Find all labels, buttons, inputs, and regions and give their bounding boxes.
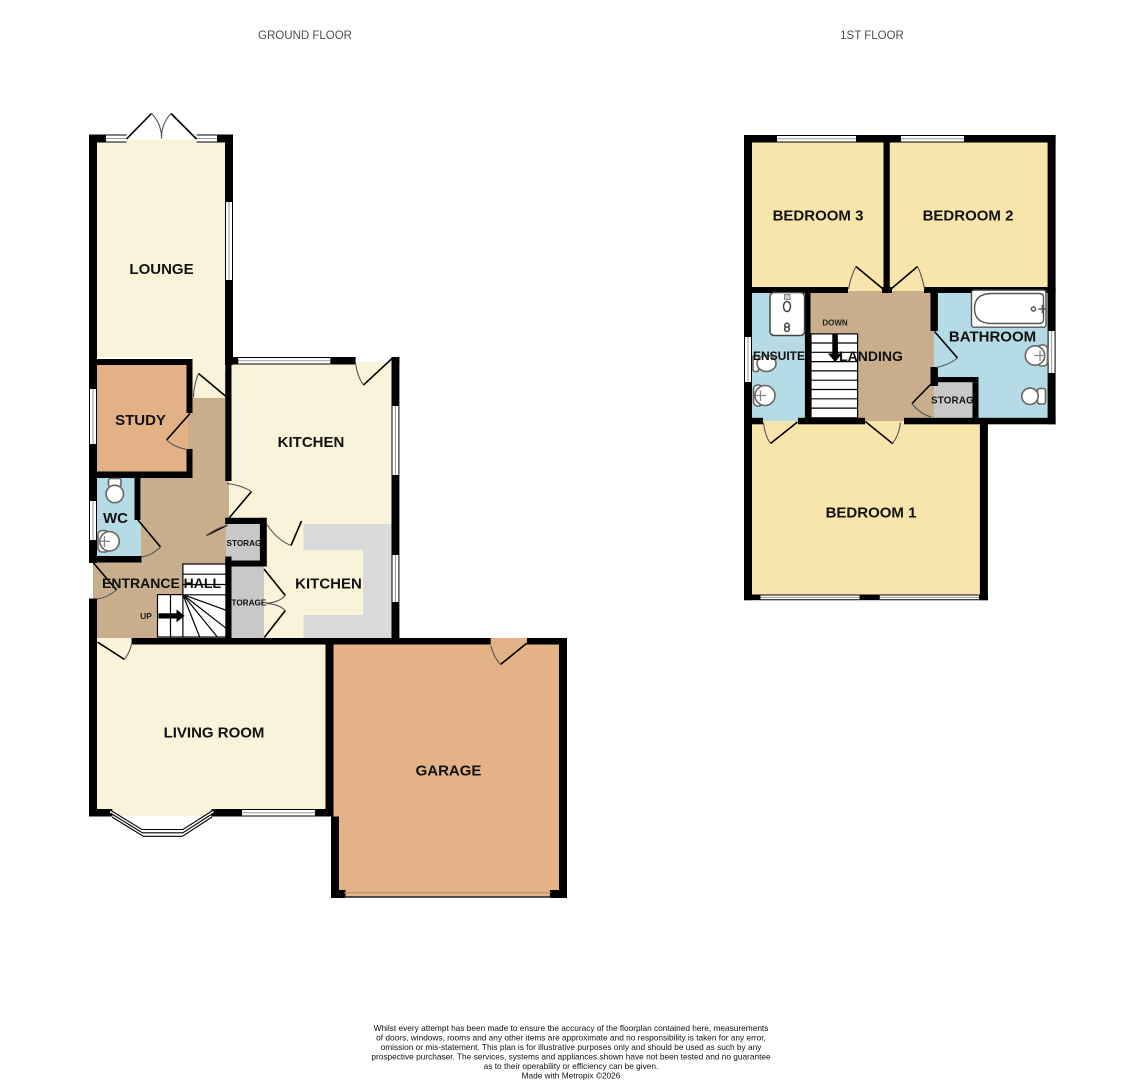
svg-text:WC: WC bbox=[103, 510, 128, 527]
svg-text:GARAGE: GARAGE bbox=[416, 763, 482, 780]
svg-text:BEDROOM 1: BEDROOM 1 bbox=[826, 505, 917, 522]
svg-text:as to their operability or eff: as to their operability or efficiency ca… bbox=[484, 1061, 659, 1071]
svg-text:LIVING ROOM: LIVING ROOM bbox=[164, 725, 265, 742]
svg-text:of doors, windows, rooms and a: of doors, windows, rooms and any other i… bbox=[376, 1033, 766, 1043]
svg-text:1ST FLOOR: 1ST FLOOR bbox=[840, 30, 904, 42]
svg-text:KITCHEN: KITCHEN bbox=[295, 576, 362, 593]
svg-text:UP: UP bbox=[140, 611, 152, 621]
svg-text:prospective purchaser. The ser: prospective purchaser. The services, sys… bbox=[371, 1052, 771, 1062]
svg-text:LANDING: LANDING bbox=[839, 348, 903, 364]
svg-text:Whilst every attempt has been: Whilst every attempt has been made to en… bbox=[374, 1023, 769, 1033]
svg-text:LOUNGE: LOUNGE bbox=[129, 261, 193, 278]
svg-text:BATHROOM: BATHROOM bbox=[949, 329, 1036, 346]
svg-text:ENTRANCE HALL: ENTRANCE HALL bbox=[102, 575, 221, 591]
svg-text:STORAG: STORAG bbox=[931, 396, 974, 407]
svg-text:Made with Metropix ©2026: Made with Metropix ©2026 bbox=[522, 1071, 621, 1081]
svg-text:BEDROOM 3: BEDROOM 3 bbox=[773, 208, 864, 225]
svg-text:KITCHEN: KITCHEN bbox=[278, 434, 345, 451]
svg-text:STUDY: STUDY bbox=[115, 412, 166, 429]
svg-text:DOWN: DOWN bbox=[822, 319, 848, 328]
svg-text:GROUND FLOOR: GROUND FLOOR bbox=[258, 30, 352, 42]
svg-text:BEDROOM 2: BEDROOM 2 bbox=[923, 208, 1014, 225]
svg-text:ENSUITE: ENSUITE bbox=[753, 349, 805, 363]
svg-text:STORAGE: STORAGE bbox=[226, 598, 267, 607]
svg-text:omission or mis-statement. Thi: omission or mis-statement. This plan is … bbox=[381, 1042, 763, 1052]
